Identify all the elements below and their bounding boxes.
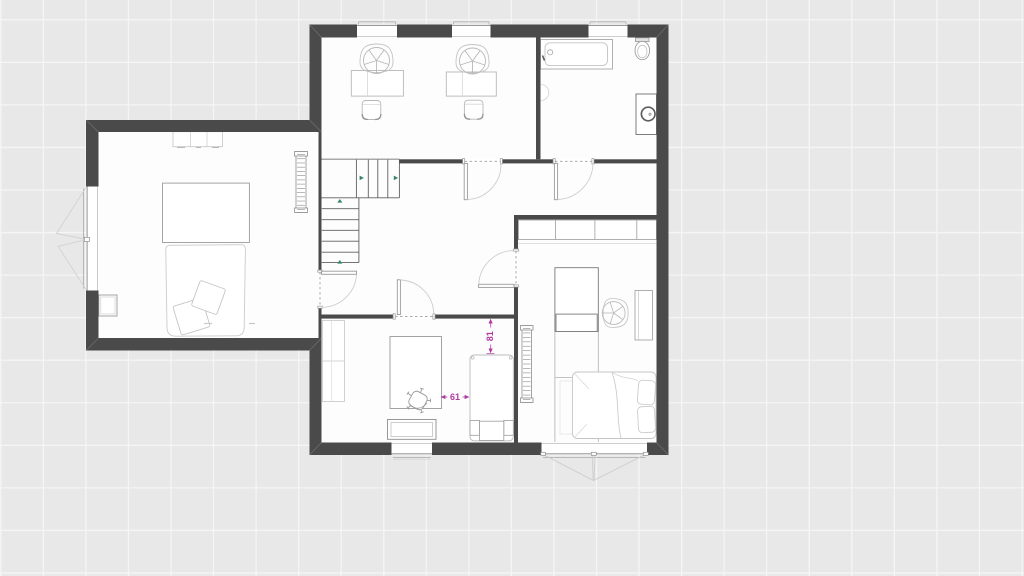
svg-text:61: 61 [450, 392, 460, 402]
svg-text:81: 81 [485, 331, 495, 341]
